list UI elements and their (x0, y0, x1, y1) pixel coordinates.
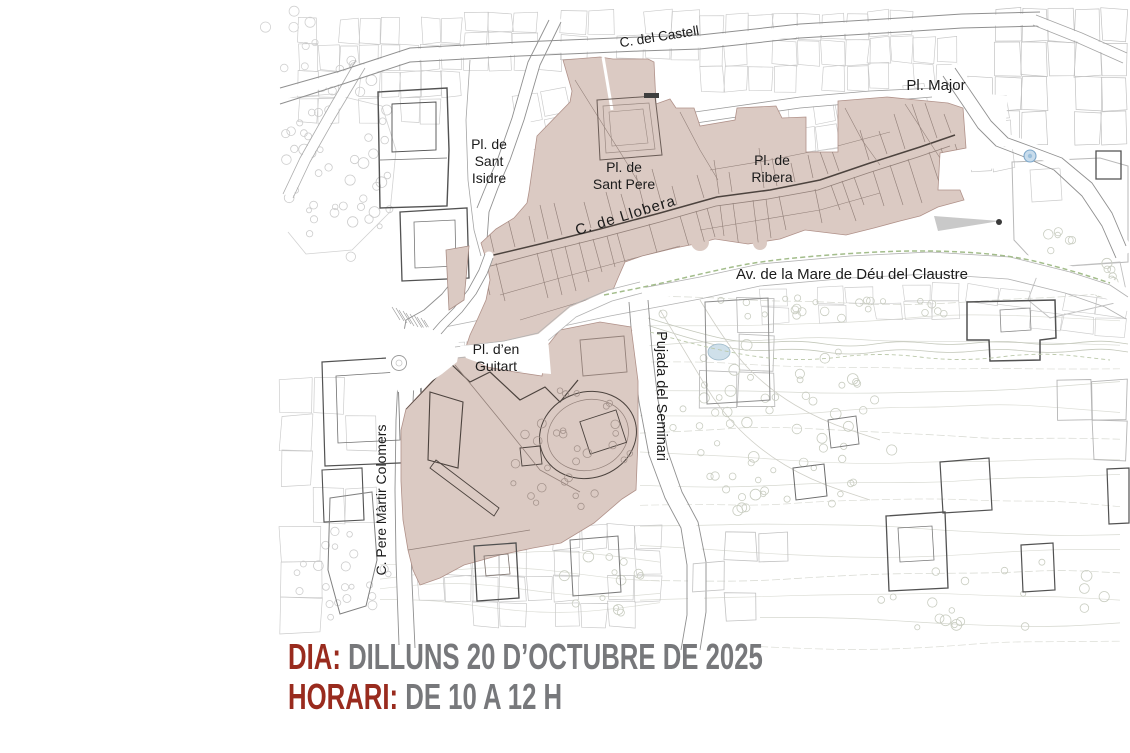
svg-text:Pl. de: Pl. de (754, 152, 790, 168)
svg-text:Av. de la Mare de Déu del Clau: Av. de la Mare de Déu del Claustre (736, 266, 968, 283)
svg-text:Ribera: Ribera (751, 169, 792, 185)
svg-text:Sant Pere: Sant Pere (593, 176, 655, 192)
svg-text:Pl. de: Pl. de (606, 159, 642, 175)
svg-text:Pl. Major: Pl. Major (906, 77, 965, 94)
svg-text:Isidre: Isidre (472, 170, 506, 186)
svg-text:Guitart: Guitart (475, 358, 517, 374)
svg-text:Pl. d’en: Pl. d’en (473, 341, 520, 357)
svg-text:Pl. de: Pl. de (471, 136, 507, 152)
svg-text:C. Pere Màrtir Colomers: C. Pere Màrtir Colomers (373, 425, 389, 576)
svg-text:Sant: Sant (475, 153, 504, 169)
svg-text:Pujada del Seminari: Pujada del Seminari (653, 331, 669, 461)
